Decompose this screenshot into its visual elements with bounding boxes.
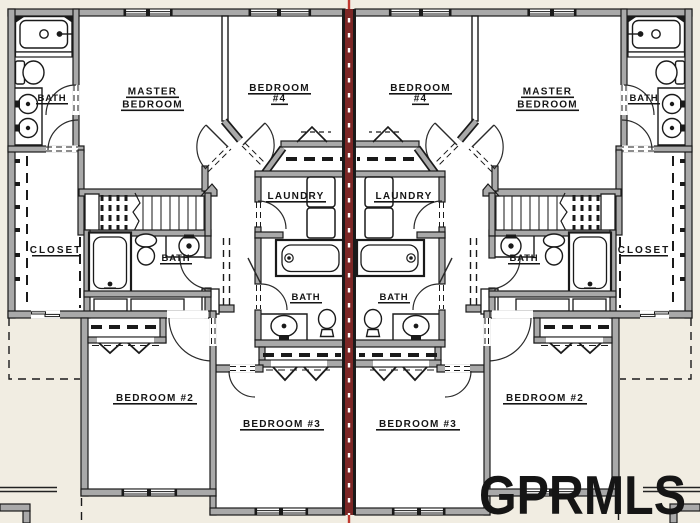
svg-text:#4: #4 [273,94,287,105]
svg-text:GPRMLS: GPRMLS [479,464,686,523]
svg-text:BATH: BATH [630,93,659,104]
svg-text:BEDROOM: BEDROOM [517,100,578,111]
svg-text:BEDROOM #3: BEDROOM #3 [243,419,321,430]
svg-text:BEDROOM: BEDROOM [122,100,183,111]
svg-text:BATH: BATH [510,253,539,264]
svg-text:BEDROOM #2: BEDROOM #2 [116,393,194,404]
svg-text:CLOSET: CLOSET [30,245,83,256]
svg-text:BATH: BATH [38,93,67,104]
svg-text:LAUNDRY: LAUNDRY [376,191,433,202]
svg-text:BATH: BATH [292,292,321,303]
svg-text:BEDROOM #3: BEDROOM #3 [379,419,457,430]
svg-text:BEDROOM: BEDROOM [249,83,310,94]
svg-text:MASTER: MASTER [128,87,177,98]
svg-text:BEDROOM: BEDROOM [390,83,451,94]
svg-text:BATH: BATH [162,253,191,264]
svg-text:LAUNDRY: LAUNDRY [268,191,325,202]
svg-text:#4: #4 [414,94,428,105]
svg-text:BATH: BATH [380,292,409,303]
svg-text:MASTER: MASTER [523,87,572,98]
svg-text:CLOSET: CLOSET [618,245,671,256]
svg-text:BEDROOM #2: BEDROOM #2 [506,393,584,404]
